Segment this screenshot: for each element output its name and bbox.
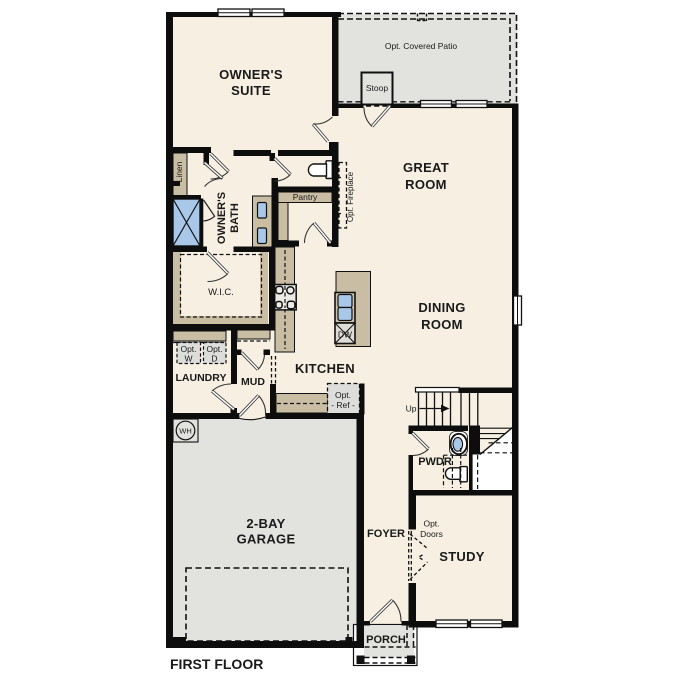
svg-text:FOYER: FOYER <box>367 528 405 540</box>
svg-text:Opt. Fireplace: Opt. Fireplace <box>346 171 355 222</box>
svg-text:- Ref -: - Ref - <box>331 400 355 410</box>
svg-text:ROOM: ROOM <box>421 317 463 332</box>
svg-text:ROOM: ROOM <box>405 177 447 192</box>
svg-text:Opt.: Opt. <box>423 519 439 529</box>
svg-text:DINING: DINING <box>418 300 465 315</box>
svg-text:OWNER'S: OWNER'S <box>219 67 283 82</box>
svg-text:Opt. Covered Patio: Opt. Covered Patio <box>385 41 458 51</box>
svg-text:Linen: Linen <box>174 161 184 182</box>
svg-text:BATH: BATH <box>229 203 241 233</box>
svg-text:LAUNDRY: LAUNDRY <box>176 372 227 384</box>
svg-text:Opt.: Opt. <box>335 390 351 400</box>
svg-text:W: W <box>184 354 192 364</box>
svg-text:Stoop: Stoop <box>366 83 388 93</box>
svg-text:2-BAY: 2-BAY <box>246 516 285 531</box>
svg-text:KITCHEN: KITCHEN <box>295 361 355 376</box>
svg-text:Pantry: Pantry <box>293 192 318 202</box>
svg-text:Opt.: Opt. <box>180 344 196 354</box>
svg-text:FIRST FLOOR: FIRST FLOOR <box>170 656 263 672</box>
svg-text:Doors: Doors <box>420 529 443 539</box>
svg-text:W.I.C.: W.I.C. <box>208 287 234 298</box>
svg-text:DW: DW <box>338 330 352 340</box>
svg-text:Opt.: Opt. <box>206 344 222 354</box>
svg-text:SUITE: SUITE <box>231 83 271 98</box>
svg-text:OWNER'S: OWNER'S <box>216 192 228 244</box>
svg-text:WH: WH <box>179 427 192 436</box>
svg-text:STUDY: STUDY <box>439 549 485 564</box>
svg-text:Up: Up <box>406 404 417 414</box>
svg-text:MUD: MUD <box>241 376 265 388</box>
svg-text:GARAGE: GARAGE <box>237 532 296 547</box>
svg-text:GREAT: GREAT <box>403 160 449 175</box>
svg-text:D: D <box>211 354 217 364</box>
svg-text:PORCH: PORCH <box>366 634 406 646</box>
svg-text:PWDR: PWDR <box>418 456 452 468</box>
